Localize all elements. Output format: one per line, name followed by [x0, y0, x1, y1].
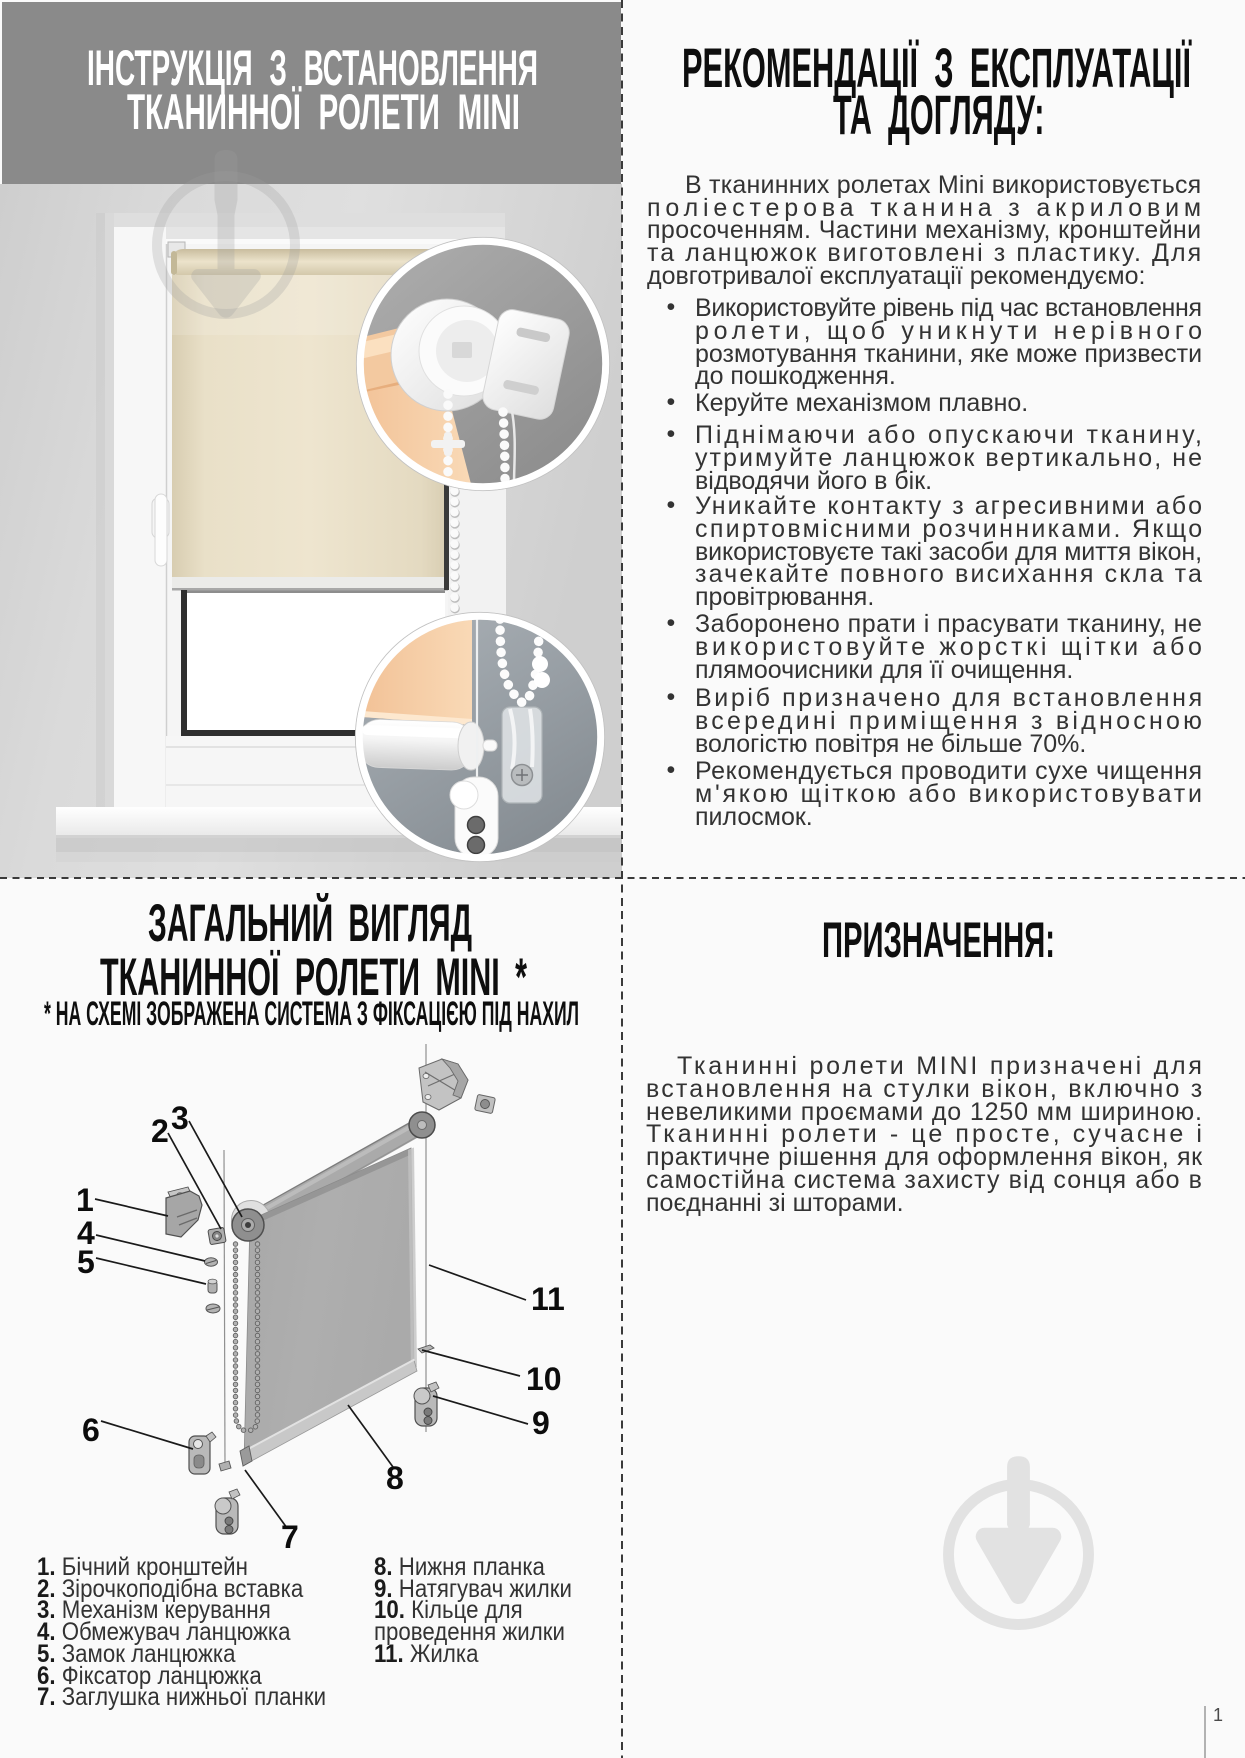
- svg-text:1: 1: [76, 1182, 94, 1218]
- svg-text:6: 6: [82, 1412, 100, 1448]
- svg-text:11: 11: [531, 1281, 565, 1317]
- svg-text:10: 10: [526, 1361, 562, 1397]
- svg-text:5: 5: [77, 1244, 95, 1280]
- svg-text:3: 3: [171, 1100, 189, 1136]
- svg-text:7: 7: [281, 1519, 299, 1555]
- svg-text:9: 9: [532, 1405, 550, 1441]
- svg-text:8: 8: [386, 1460, 404, 1496]
- svg-text:2: 2: [151, 1113, 169, 1149]
